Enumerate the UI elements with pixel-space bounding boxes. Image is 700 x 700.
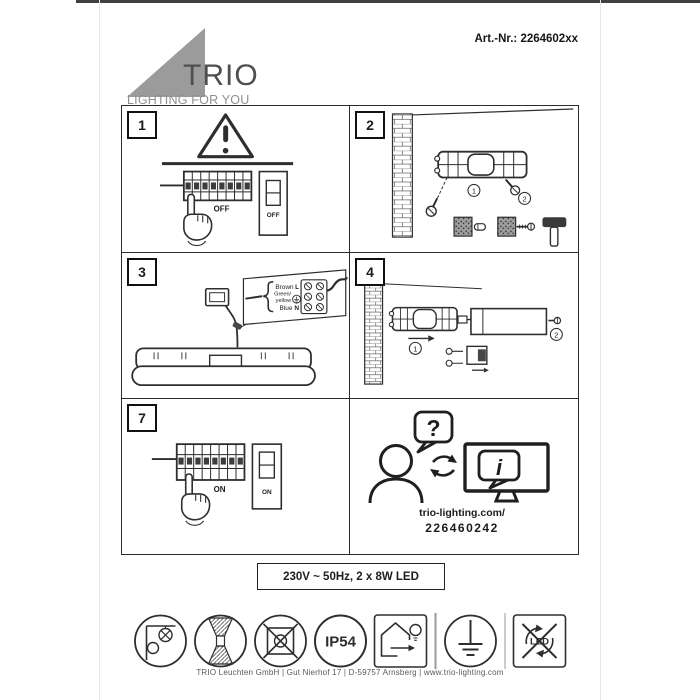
step-7-cell: 7 xyxy=(122,399,350,554)
exchange-arrows-icon xyxy=(430,455,457,478)
step-number-badge: 1 xyxy=(127,111,157,139)
support-article-code: 226460242 xyxy=(425,521,499,535)
wire-neutral-label: BlueN xyxy=(280,305,300,312)
marker-2: 2 xyxy=(523,194,527,203)
up-down-light-icon xyxy=(193,613,249,669)
marker-1: 1 xyxy=(472,186,476,195)
step-number-badge: 4 xyxy=(355,258,385,286)
support-cell: ? i trio-lighting.com/ 226460242 xyxy=(350,399,578,554)
support-url: trio-lighting.com/ xyxy=(419,507,505,519)
icon-separator xyxy=(435,613,437,669)
scan-artifact-top xyxy=(76,0,700,3)
step-1-cell: 1 xyxy=(122,106,350,253)
svg-text:LED: LED xyxy=(530,637,549,648)
step-number-badge: 2 xyxy=(355,111,385,139)
marker-1: 1 xyxy=(413,344,417,353)
wire-earth-label-1: Green/ xyxy=(274,292,291,298)
protective-earth-icon xyxy=(442,613,498,669)
marker-2: 2 xyxy=(554,330,558,339)
step-3-cell: 3 xyxy=(122,253,350,399)
step-4-cell: 4 xyxy=(350,253,578,399)
support-illustration: ? i trio-lighting.com/ 226460242 xyxy=(350,399,578,554)
safety-symbols-row: IP54 LED xyxy=(133,613,568,669)
svg-text:IP54: IP54 xyxy=(325,634,357,651)
page-edge-left xyxy=(99,0,100,700)
icon-separator xyxy=(504,613,506,669)
info-mark: i xyxy=(496,455,503,480)
switch-off-label: OFF xyxy=(267,212,280,219)
switch-on-label: ON xyxy=(262,489,272,496)
person-silhouette-icon xyxy=(381,446,412,477)
step-markers: 1 2 xyxy=(468,184,531,204)
brand-wordmark: TRIO xyxy=(183,59,259,93)
step-number-badge: 3 xyxy=(127,258,157,286)
footer-company-line: TRIO Leuchten GmbH | Gut Nierhof 17 | D-… xyxy=(0,668,700,677)
outdoor-use-icon xyxy=(373,613,429,669)
breaker-on-label: ON xyxy=(214,485,226,494)
step-2-cell: 2 xyxy=(350,106,578,253)
non-replaceable-led-icon: LED xyxy=(512,613,568,669)
wire-live-label: BrownL xyxy=(275,284,299,291)
instruction-grid: 1 xyxy=(121,105,579,555)
wall-mounting-surface-icon xyxy=(133,613,189,669)
no-cover-icon xyxy=(253,613,309,669)
breaker-off-label: OFF xyxy=(214,204,230,213)
wire-earth-label-2: yellow xyxy=(276,298,292,304)
page-edge-right xyxy=(600,0,601,700)
ip54-badge: IP54 xyxy=(313,613,369,669)
step-number-badge: 7 xyxy=(127,404,157,432)
electrical-spec-box: 230V ~ 50Hz, 2 x 8W LED xyxy=(257,563,445,590)
article-number: Art.-Nr.: 2264602xx xyxy=(350,33,578,45)
question-mark: ? xyxy=(426,415,440,441)
